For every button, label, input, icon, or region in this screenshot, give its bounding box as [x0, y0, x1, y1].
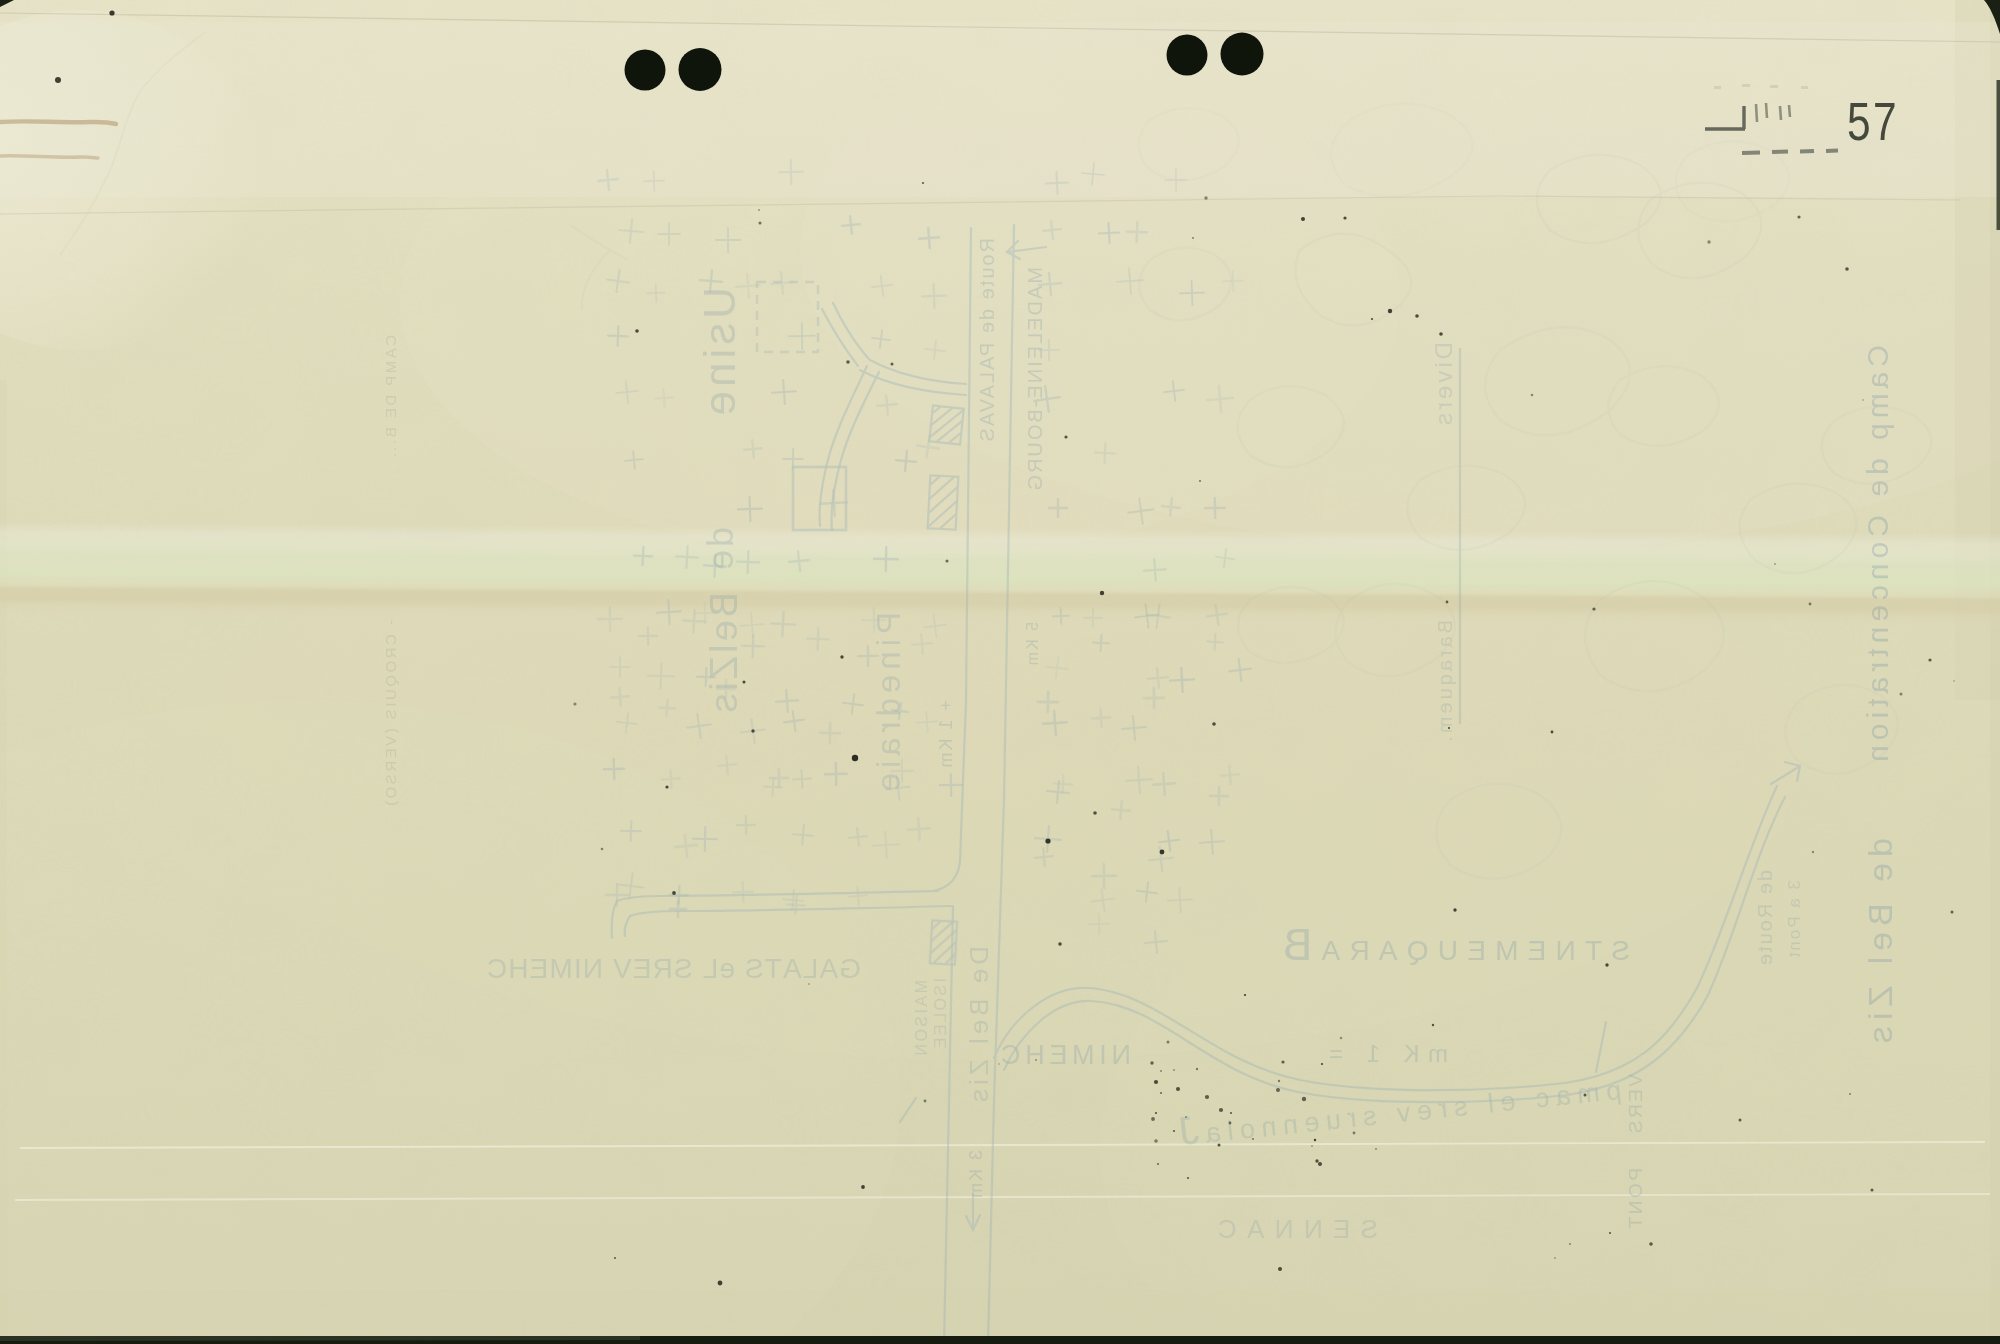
- svg-text:T: T: [1585, 935, 1602, 966]
- svg-text:A: A: [1246, 1214, 1264, 1244]
- svg-text:e: e: [1303, 1107, 1321, 1138]
- svg-text:n: n: [1281, 1109, 1299, 1140]
- svg-text:L: L: [803, 953, 819, 984]
- svg-text:=: =: [1329, 1040, 1343, 1067]
- svg-text:E: E: [1528, 935, 1547, 966]
- svg-text:S: S: [1361, 1214, 1378, 1244]
- svg-text:MADELEINE-BOURG: MADELEINE-BOURG: [1024, 267, 1046, 493]
- svg-text:e: e: [719, 953, 735, 984]
- svg-text:MAISON: MAISON: [913, 980, 930, 1058]
- svg-text:de: de: [700, 527, 741, 573]
- svg-text:A: A: [819, 953, 838, 984]
- svg-text:I: I: [574, 953, 582, 984]
- svg-text:K: K: [1403, 1040, 1419, 1067]
- svg-text:H: H: [1025, 1040, 1045, 1070]
- svg-text:57: 57: [1847, 93, 1899, 152]
- svg-text:5 Km: 5 Km: [1024, 622, 1041, 667]
- svg-text:S: S: [1611, 935, 1630, 966]
- svg-text:A: A: [783, 953, 802, 984]
- svg-text:VERS: VERS: [1625, 1074, 1646, 1136]
- svg-text:S: S: [745, 953, 764, 984]
- svg-text:E: E: [530, 953, 549, 984]
- svg-text:R: R: [653, 953, 673, 984]
- svg-text:Route de PALAVAS: Route de PALAVAS: [976, 238, 998, 443]
- svg-text:- CROQUIS (VERSO): - CROQUIS (VERSO): [382, 620, 399, 808]
- svg-text:Pinedraie: Pinedraie: [870, 612, 907, 796]
- svg-text:de Bel Zis: de Bel Zis: [1861, 838, 1899, 1049]
- svg-text:C: C: [1218, 1214, 1237, 1244]
- svg-text:Usine: Usine: [695, 287, 744, 420]
- svg-text:Divers: Divers: [1430, 342, 1457, 428]
- svg-text:u: u: [1324, 1104, 1342, 1135]
- svg-text:3 a Pont: 3 a Pont: [1785, 880, 1804, 959]
- svg-text:3 Km: 3 Km: [966, 1150, 986, 1200]
- svg-text:V: V: [613, 953, 632, 984]
- svg-text:B: B: [1283, 920, 1312, 969]
- svg-text:De Bel Zis: De Bel Zis: [964, 946, 994, 1106]
- svg-text:p: p: [1605, 1075, 1623, 1106]
- svg-text:n: n: [1260, 1111, 1278, 1142]
- svg-text:S: S: [674, 953, 693, 984]
- svg-text:m: m: [1428, 1040, 1448, 1067]
- svg-text:A: A: [1379, 935, 1398, 966]
- svg-text:N: N: [1304, 1214, 1323, 1244]
- svg-text:CAMP DE B...: CAMP DE B...: [382, 335, 399, 460]
- svg-text:o: o: [1238, 1113, 1256, 1144]
- svg-text:U: U: [1438, 935, 1458, 966]
- svg-text:M: M: [1072, 1040, 1095, 1070]
- svg-text:E: E: [1049, 1040, 1067, 1070]
- svg-text:C: C: [487, 953, 507, 984]
- svg-text:L: L: [703, 953, 719, 984]
- svg-text:I: I: [1099, 1040, 1107, 1070]
- svg-text:R: R: [1349, 935, 1369, 966]
- svg-text:e: e: [1499, 1086, 1517, 1117]
- svg-text:+ 1 Km: + 1 Km: [936, 700, 956, 770]
- svg-text:de Route: de Route: [1754, 870, 1776, 967]
- svg-text:M: M: [549, 953, 572, 984]
- svg-text:C: C: [1001, 1040, 1021, 1070]
- svg-text:N: N: [1275, 1214, 1294, 1244]
- svg-text:N: N: [1556, 935, 1576, 966]
- svg-text:N: N: [1112, 1040, 1132, 1070]
- svg-text:m: m: [1576, 1077, 1602, 1109]
- svg-text:ISOLEE: ISOLEE: [932, 978, 949, 1051]
- svg-text:Q: Q: [1407, 935, 1429, 966]
- svg-text:N: N: [583, 953, 603, 984]
- svg-text:H: H: [508, 953, 528, 984]
- svg-text:PONT: PONT: [1625, 1168, 1646, 1231]
- svg-text:A: A: [1321, 935, 1340, 966]
- svg-text:E: E: [633, 953, 652, 984]
- svg-text:T: T: [765, 953, 782, 984]
- svg-text:E: E: [1333, 1214, 1350, 1244]
- svg-text:e: e: [1415, 1095, 1433, 1126]
- svg-text:E: E: [1467, 935, 1486, 966]
- svg-text:BelZis: BelZis: [703, 592, 745, 716]
- svg-text:G: G: [839, 953, 861, 984]
- svg-text:M: M: [1495, 935, 1518, 966]
- svg-text:1: 1: [1367, 1040, 1380, 1067]
